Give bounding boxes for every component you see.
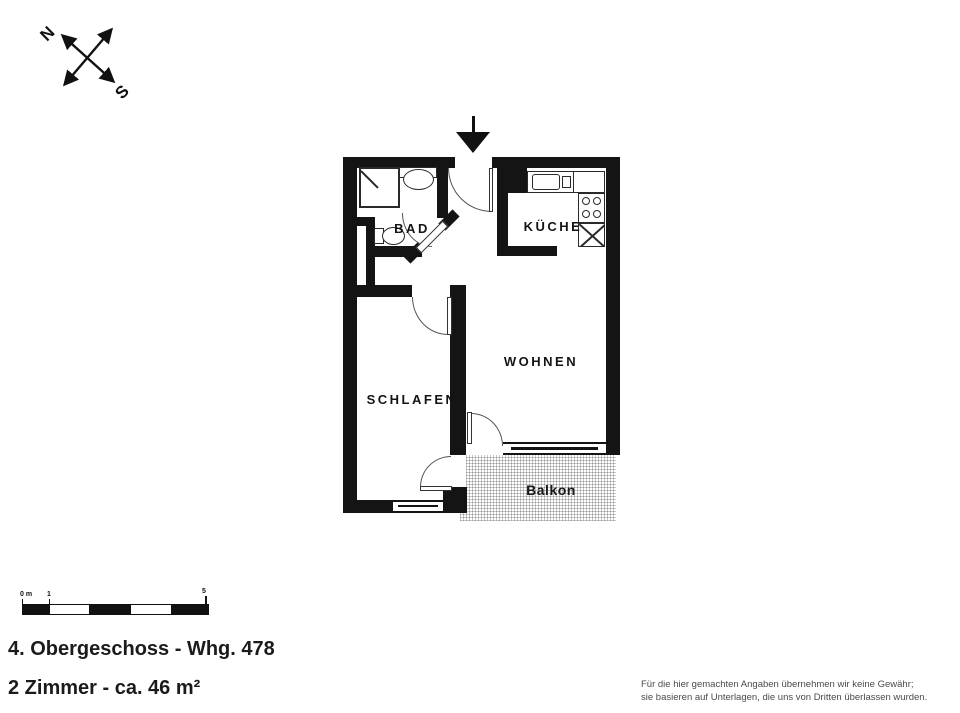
scale-segment <box>171 605 208 614</box>
disclaimer-line-2: sie basieren auf Unterlagen, die uns von… <box>641 692 927 705</box>
compass-axis-ew <box>65 30 111 84</box>
wohnen-balcony-door-arc <box>471 413 503 446</box>
entrance-arrow-icon <box>456 132 490 153</box>
room-label-bad: BAD <box>394 221 430 236</box>
schlafen-wohnen-wall <box>450 285 466 455</box>
compass-rose: N S <box>25 8 155 118</box>
entrance-door-leaf <box>489 168 493 212</box>
compass-north-label: N <box>36 23 58 45</box>
outer-wall-right <box>606 157 620 455</box>
burner <box>582 197 590 205</box>
scale-tick-0 <box>22 599 23 604</box>
scale-bar <box>22 604 209 615</box>
burner <box>582 210 590 218</box>
disclaimer-line-1: Für die hier gemachten Angaben übernehme… <box>641 679 927 692</box>
scale-segment <box>23 605 50 614</box>
schlafen-window <box>393 500 443 513</box>
outer-wall-top-right <box>492 157 620 168</box>
kitchen-left-wall <box>497 163 508 256</box>
schlafen-top-wall <box>343 285 412 297</box>
burner <box>593 210 601 218</box>
floor-apartment-title: 4. Obergeschoss - Whg. 478 <box>8 638 275 661</box>
schlafen-balcony-door-leaf <box>420 486 452 491</box>
compass-south-label: S <box>111 81 132 102</box>
schlafen-balcony-doorway <box>450 455 466 487</box>
kitchen-stub-wall <box>508 168 527 193</box>
disclaimer-text: Für die hier gemachten Angaben übernehme… <box>641 679 927 704</box>
washbasin-icon <box>403 169 434 190</box>
wohnen-window <box>503 442 606 455</box>
room-label-wohnen: WOHNEN <box>504 354 578 369</box>
kitchen-bottom-wall <box>497 246 557 256</box>
burner <box>593 197 601 205</box>
schlafen-door-leaf <box>447 297 452 335</box>
room-label-schlafen: SCHLAFEN <box>367 392 458 407</box>
kitchen-faucet-icon <box>562 176 571 188</box>
scale-tick-5 <box>205 596 207 604</box>
schlafen-window-pane <box>398 505 438 507</box>
floorplan-page: N S <box>0 0 960 713</box>
wohnen-window-pane <box>511 447 598 450</box>
scale-tick-1 <box>49 599 50 604</box>
schlafen-balcony-door-arc <box>420 456 451 487</box>
outer-wall-left <box>343 157 357 513</box>
scale-label-1: 1 <box>47 591 51 598</box>
schlafen-door-arc <box>412 297 448 335</box>
bath-right-wall <box>437 163 448 218</box>
scale-segment <box>89 605 131 614</box>
kitchen-sink-icon <box>532 174 560 190</box>
schlafen-bottom-wall <box>343 500 393 513</box>
scale-label-5: 5 <box>202 588 206 595</box>
kitchen-counter-divider <box>573 171 574 193</box>
scale-label-0: 0 m <box>20 591 32 598</box>
room-label-balkon: Balkon <box>526 482 576 498</box>
rooms-area-title: 2 Zimmer - ca. 46 m² <box>8 677 200 700</box>
wohnen-balcony-door-leaf <box>467 412 472 444</box>
entrance-door-arc <box>448 168 492 212</box>
room-label-kueche: KÜCHE <box>524 219 583 234</box>
